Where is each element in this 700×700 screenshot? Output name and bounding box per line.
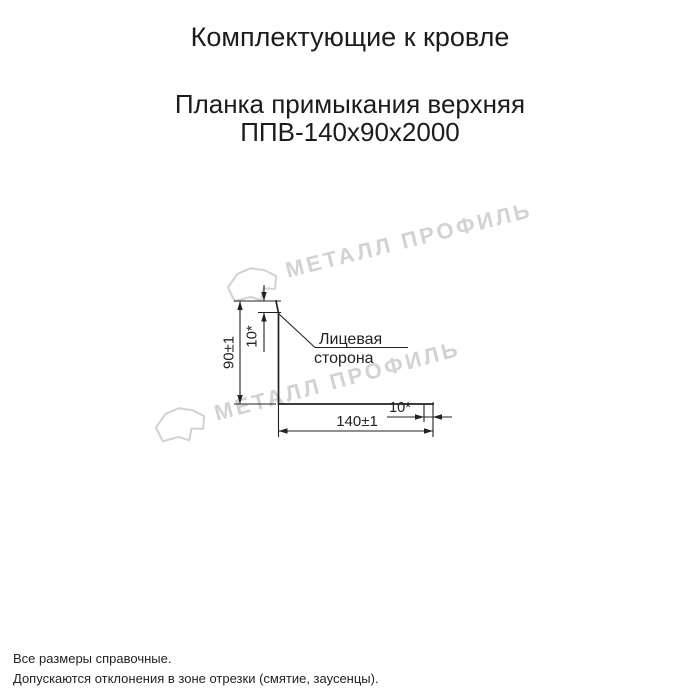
- footnote-line1: Все размеры справочные.: [13, 649, 379, 669]
- face-side-label-line1: Лицевая: [319, 331, 382, 349]
- footnote-line2: Допускаются отклонения в зоне отрезки (с…: [13, 669, 379, 689]
- product-code: ППВ-140х90х2000: [0, 118, 700, 146]
- face-side-label-line2: сторона: [314, 350, 374, 368]
- dimension-label-top-hem: 10*: [244, 317, 261, 357]
- product-heading: Планка примыкания верхняя ППВ-140х90х200…: [0, 90, 700, 146]
- dimension-label-end-hem: 10*: [382, 400, 418, 416]
- dimension-label-height: 90±1: [221, 323, 238, 383]
- drawing-sheet: Комплектующие к кровле Планка примыкания…: [0, 0, 700, 700]
- page-title: Комплектующие к кровле: [0, 23, 700, 51]
- product-name: Планка примыкания верхняя: [0, 90, 700, 118]
- footnotes: Все размеры справочные. Допускаются откл…: [13, 649, 379, 689]
